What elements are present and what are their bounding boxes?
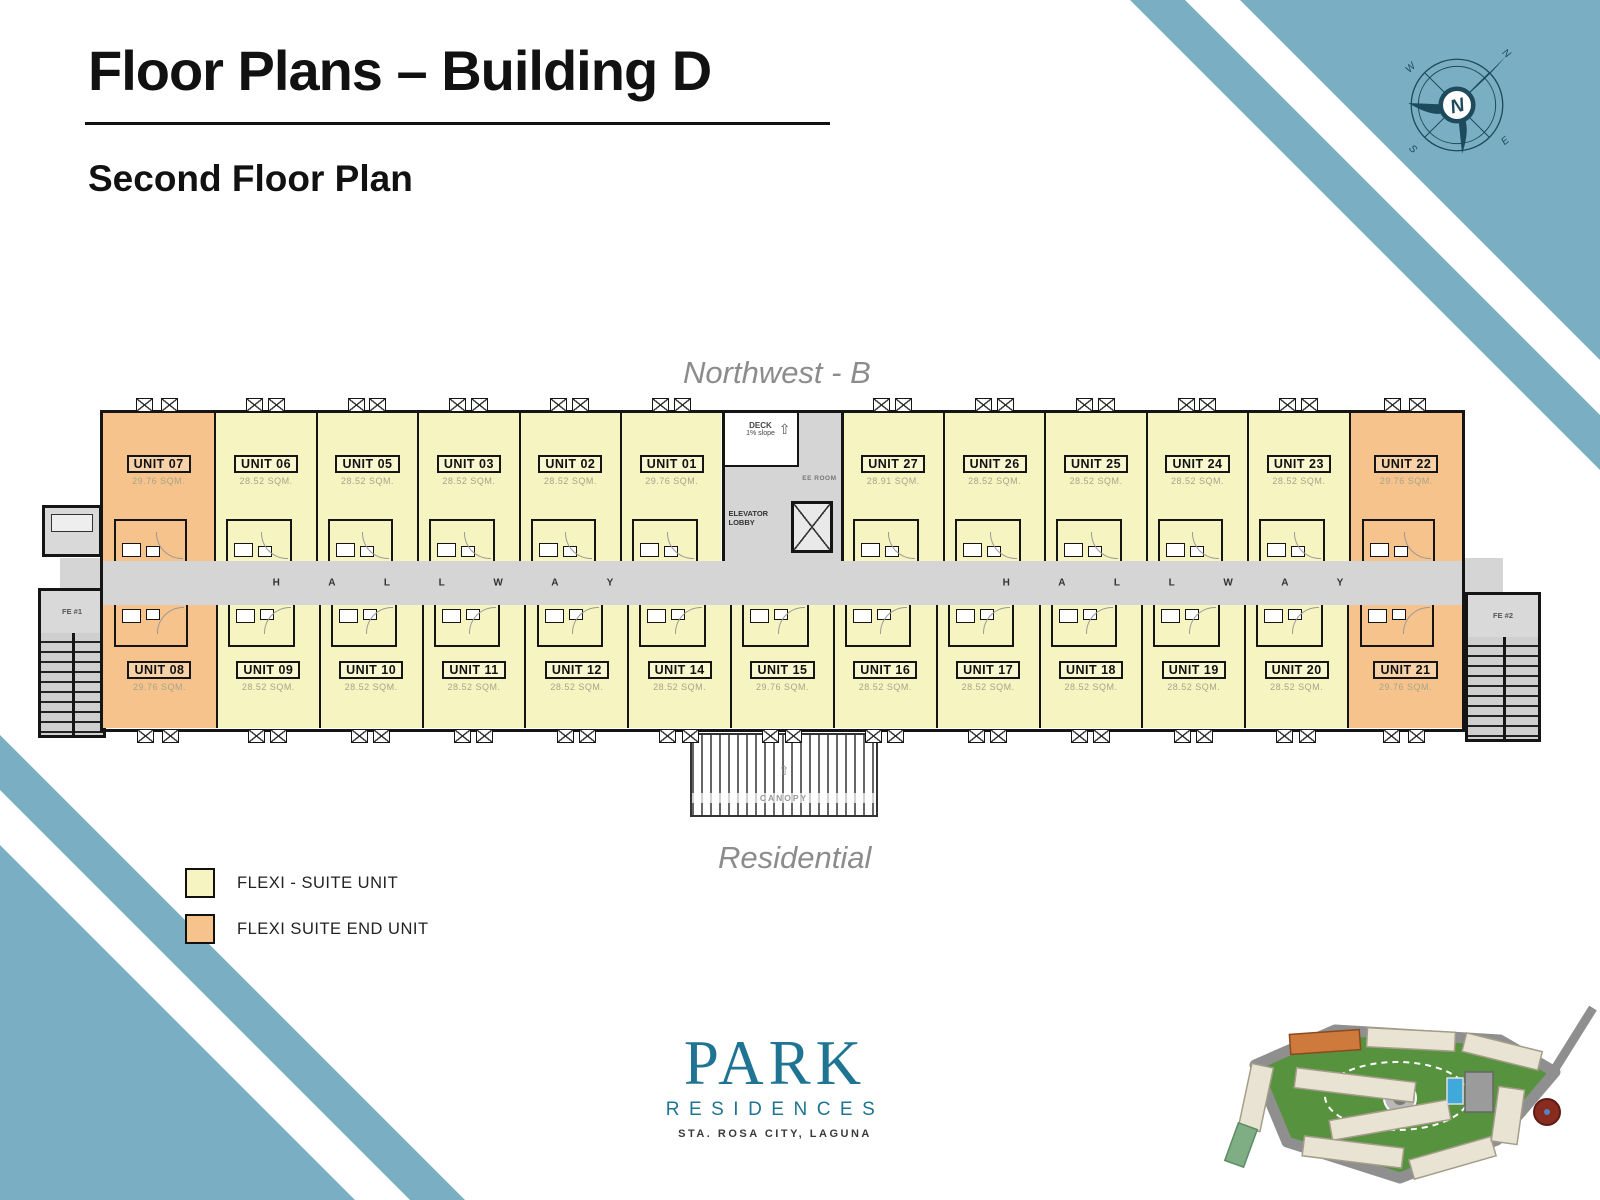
unit-area: 29.76 SQM. [756,682,809,692]
balcony-icon [1276,729,1293,743]
bathroom-module [1360,605,1434,647]
unit-area: 28.52 SQM. [653,682,706,692]
fixture-icon [1264,609,1283,623]
elevator-lobby-label: ELEVATOR LOBBY [729,509,769,527]
unit-area: 28.52 SQM. [1272,476,1325,486]
unit-03: UNIT 0328.52 SQM. [417,413,518,561]
unit-area: 28.52 SQM. [341,476,394,486]
balcony-icon [1199,398,1216,412]
balcony-icon [162,729,179,743]
fixture-icon [146,546,160,557]
unit-23: UNIT 2328.52 SQM. [1247,413,1348,561]
utility-room [42,505,102,557]
balcony-icon [471,398,488,412]
bathroom-module [639,605,706,647]
balcony-icon [136,398,153,412]
fixture-icon [1368,609,1387,623]
balcony-icon [1076,398,1093,412]
unit-area: 28.52 SQM. [859,682,912,692]
bathroom-module [331,605,398,647]
unit-area: 29.76 SQM. [132,476,185,486]
bottom-unit-row: UNIT 0829.76 SQM.UNIT 0928.52 SQM.UNIT 1… [103,605,1462,728]
fire-exit-label: FE #1 [62,607,82,616]
site-map-thumbnail [1195,980,1600,1195]
unit-20: UNIT 2028.52 SQM. [1244,605,1347,728]
bathroom-module [1158,519,1224,561]
bathroom-module [537,605,604,647]
unit-label: UNIT 06 [234,455,298,473]
unit-area: 28.52 SQM. [240,476,293,486]
orientation-label-top: Northwest - B [683,355,871,391]
stair-landing: FE #1 [41,591,103,633]
unit-area: 29.76 SQM. [1380,476,1433,486]
top-right-section: UNIT 2728.91 SQM.UNIT 2628.52 SQM.UNIT 2… [844,413,1463,561]
hallway: H A L L W A Y H A L L W A Y [103,561,1462,605]
fixture-icon [442,609,461,623]
unit-area: 28.52 SQM. [550,682,603,692]
fire-exit-label: FE #2 [1493,611,1513,620]
fixture-icon [336,543,355,557]
balcony-icon [1409,398,1426,412]
fixture-icon [234,543,253,557]
unit-label: UNIT 17 [956,661,1020,679]
bathroom-module [434,605,501,647]
balcony-icon [1093,729,1110,743]
fixture-icon [539,543,558,557]
fixture-icon [1064,543,1083,557]
unit-label: UNIT 21 [1373,661,1437,679]
elevator-shaft-icon [791,501,833,553]
unit-area: 29.76 SQM. [1379,682,1432,692]
door-swing-icon [1403,607,1430,634]
fixture-icon [963,543,982,557]
unit-area: 28.52 SQM. [962,682,1015,692]
unit-02: UNIT 0228.52 SQM. [519,413,620,561]
balcony-icon [373,729,390,743]
orientation-label-bottom: Residential [718,840,871,876]
unit-11: UNIT 1128.52 SQM. [422,605,525,728]
flexi-suite-swatch [185,868,215,898]
unit-label: UNIT 16 [853,661,917,679]
unit-label: UNIT 05 [335,455,399,473]
highlighted-building [1289,1030,1360,1055]
unit-label: UNIT 23 [1267,455,1331,473]
bathroom-module [845,605,912,647]
door-swing-icon [157,607,184,634]
bathroom-module [328,519,394,561]
svg-text:W: W [1404,60,1420,76]
top-left-section: UNIT 0729.76 SQM.UNIT 0628.52 SQM.UNIT 0… [103,413,722,561]
balcony-icon [1196,729,1213,743]
balcony-icon [369,398,386,412]
bathroom-module [228,605,295,647]
unit-06: UNIT 0628.52 SQM. [214,413,315,561]
door-swing-icon [1404,532,1431,559]
balcony-icon [161,398,178,412]
balcony-icon [887,729,904,743]
fire-exit-stairs-left: FE #1 [38,588,106,738]
stair-treads [41,633,103,735]
unit-label: UNIT 10 [339,661,403,679]
fixture-icon [750,609,769,623]
unit-area: 28.52 SQM. [447,682,500,692]
balcony-icon [1408,729,1425,743]
unit-area: 29.76 SQM. [133,682,186,692]
unit-label: UNIT 12 [545,661,609,679]
unit-label: UNIT 08 [127,661,191,679]
bathroom-module [853,519,919,561]
fixture-icon [146,609,160,620]
balcony-icon [1384,398,1401,412]
fixture-icon [437,543,456,557]
bathroom-module [1256,605,1323,647]
unit-label: UNIT 15 [750,661,814,679]
bathroom-module [632,519,698,561]
unit-label: UNIT 11 [442,661,505,679]
bathroom-module [114,519,187,561]
balcony-icon [997,398,1014,412]
balcony-icon [682,729,699,743]
hallway-label-left: H A L L W A Y [143,578,743,589]
balcony-icon [348,398,365,412]
ee-room-label: EE ROOM [802,475,836,482]
bathroom-module [531,519,597,561]
unit-area: 28.52 SQM. [968,476,1021,486]
canopy-label: CANOPY [692,793,876,803]
balcony-icon [990,729,1007,743]
fixture-icon [640,543,659,557]
svg-text:E: E [1499,135,1511,148]
page-title: Floor Plans – Building D [88,38,711,103]
bathroom-module [226,519,292,561]
unit-18: UNIT 1828.52 SQM. [1039,605,1142,728]
bathroom-module [1153,605,1220,647]
bathroom-module [955,519,1021,561]
unit-09: UNIT 0928.52 SQM. [216,605,319,728]
balcony-icon [873,398,890,412]
unit-area: 28.52 SQM. [1171,476,1224,486]
fixture-icon [236,609,255,623]
title-underline [85,122,830,125]
unit-05: UNIT 0528.52 SQM. [316,413,417,561]
balcony-icon [975,398,992,412]
balcony-icon [270,729,287,743]
stair-landing: FE #2 [1468,595,1538,637]
bathroom-module [114,605,188,647]
fire-exit-stairs-right: FE #2 [1465,592,1541,742]
legend-item: FLEXI SUITE END UNIT [185,914,429,944]
fixture-icon [122,543,141,557]
unit-label: UNIT 02 [538,455,602,473]
unit-24: UNIT 2428.52 SQM. [1146,413,1247,561]
balcony-icon [1299,729,1316,743]
unit-area: 28.52 SQM. [345,682,398,692]
fixture-icon [1267,543,1286,557]
unit-17: UNIT 1728.52 SQM. [936,605,1039,728]
fixture-icon [1394,546,1408,557]
legend-item: FLEXI - SUITE UNIT [185,868,429,898]
slope-arrow-icon: ⇧ [779,421,791,438]
fixture-icon [956,609,975,623]
bathroom-module [948,605,1015,647]
balcony-icon [659,729,676,743]
unit-label: UNIT 07 [127,455,191,473]
flexi-suite-end-swatch [185,914,215,944]
balcony-icon [1279,398,1296,412]
balcony-icon [351,729,368,743]
unit-15: UNIT 1529.76 SQM. [730,605,833,728]
unit-area: 28.52 SQM. [544,476,597,486]
balcony-icon [968,729,985,743]
hallway-label-right: H A L L W A Y [883,578,1463,589]
bathroom-module [429,519,495,561]
unit-01: UNIT 0129.76 SQM. [620,413,721,561]
unit-area: 28.52 SQM. [1270,682,1323,692]
unit-07: UNIT 0729.76 SQM. [103,413,214,561]
unit-label: UNIT 25 [1064,455,1128,473]
top-unit-row: UNIT 0729.76 SQM.UNIT 0628.52 SQM.UNIT 0… [103,413,1462,561]
stair-treads [1468,637,1538,739]
fixture-icon [122,609,141,623]
unit-area: 29.76 SQM. [645,476,698,486]
unit-label: UNIT 27 [861,455,925,473]
fixture-icon [647,609,666,623]
balcony-icon [572,398,589,412]
canopy-arrow-icon: ⇧ [692,763,876,779]
unit-label: UNIT 20 [1265,661,1329,679]
unit-27: UNIT 2728.91 SQM. [844,413,943,561]
floor-plan: UNIT 0729.76 SQM.UNIT 0628.52 SQM.UNIT 0… [100,410,1465,732]
balcony-icon [557,729,574,743]
brand-logo: PARK RESIDENCES STA. ROSA CITY, LAGUNA [615,1032,935,1140]
unit-label: UNIT 09 [236,661,300,679]
bathroom-module [742,605,809,647]
unit-label: UNIT 26 [963,455,1027,473]
balcony-icon [1301,398,1318,412]
deck: ⇧ DECK 1% slope [725,413,799,467]
balcony-icon [865,729,882,743]
fixture-icon [1059,609,1078,623]
unit-area: 28.91 SQM. [867,476,920,486]
balcony-icon [268,398,285,412]
door-swing-icon [156,532,183,559]
fixture-icon [853,609,872,623]
unit-22: UNIT 2229.76 SQM. [1349,413,1462,561]
fixture-icon [1370,543,1389,557]
slide: Floor Plans – Building D Second Floor Pl… [0,0,1600,1200]
svg-text:N: N [1500,47,1513,61]
balcony-icon [785,729,802,743]
unit-label: UNIT 24 [1165,455,1229,473]
balcony-icon [1174,729,1191,743]
balcony-icon [246,398,263,412]
unit-12: UNIT 1228.52 SQM. [524,605,627,728]
balcony-icon [550,398,567,412]
unit-area: 28.52 SQM. [1167,682,1220,692]
unit-25: UNIT 2528.52 SQM. [1044,413,1145,561]
balcony-icon [1098,398,1115,412]
logo-line2: RESIDENCES [615,1099,935,1121]
fixture-icon [1166,543,1185,557]
fixture-icon [1392,609,1406,620]
logo-name: PARK [615,1032,935,1095]
balcony-icon [449,398,466,412]
balcony-icon [1383,729,1400,743]
unit-19: UNIT 1928.52 SQM. [1141,605,1244,728]
unit-21: UNIT 2129.76 SQM. [1347,605,1462,728]
unit-area: 28.52 SQM. [1070,476,1123,486]
logo-location: STA. ROSA CITY, LAGUNA [615,1128,935,1140]
unit-area: 28.52 SQM. [442,476,495,486]
unit-16: UNIT 1628.52 SQM. [833,605,936,728]
bathroom-module [1362,519,1435,561]
svg-text:S: S [1406,143,1419,156]
unit-area: 28.52 SQM. [242,682,295,692]
balcony-icon [137,729,154,743]
unit-label: UNIT 18 [1059,661,1123,679]
fixture-icon [545,609,564,623]
unit-label: UNIT 22 [1374,455,1438,473]
unit-14: UNIT 1428.52 SQM. [627,605,730,728]
unit-label: UNIT 01 [640,455,704,473]
balcony-icon [674,398,691,412]
unit-label: UNIT 14 [648,661,712,679]
legend: FLEXI - SUITE UNIT FLEXI SUITE END UNIT [185,868,429,960]
balcony-icon [476,729,493,743]
balcony-icon [762,729,779,743]
compass-rose-icon: N N W E S [1396,44,1518,166]
unit-label: UNIT 19 [1162,661,1226,679]
page-subtitle: Second Floor Plan [88,158,413,200]
bathroom-module [1051,605,1118,647]
balcony-icon [579,729,596,743]
balcony-icon [895,398,912,412]
balcony-icon [652,398,669,412]
bathroom-module [1056,519,1122,561]
balcony-icon [248,729,265,743]
fixture-icon [861,543,880,557]
unit-10: UNIT 1028.52 SQM. [319,605,422,728]
bathroom-module [1259,519,1325,561]
unit-label: UNIT 03 [437,455,501,473]
unit-area: 28.52 SQM. [1064,682,1117,692]
balcony-icon [454,729,471,743]
balcony-icon [1071,729,1088,743]
canopy: ⇧ CANOPY [690,733,878,817]
unit-26: UNIT 2628.52 SQM. [943,413,1044,561]
unit-08: UNIT 0829.76 SQM. [103,605,216,728]
elevator-core: ⇧ DECK 1% slope EE ROOM ELEVATOR LOBBY [722,413,844,561]
fixture-icon [1161,609,1180,623]
balcony-icon [1178,398,1195,412]
fixture-icon [339,609,358,623]
